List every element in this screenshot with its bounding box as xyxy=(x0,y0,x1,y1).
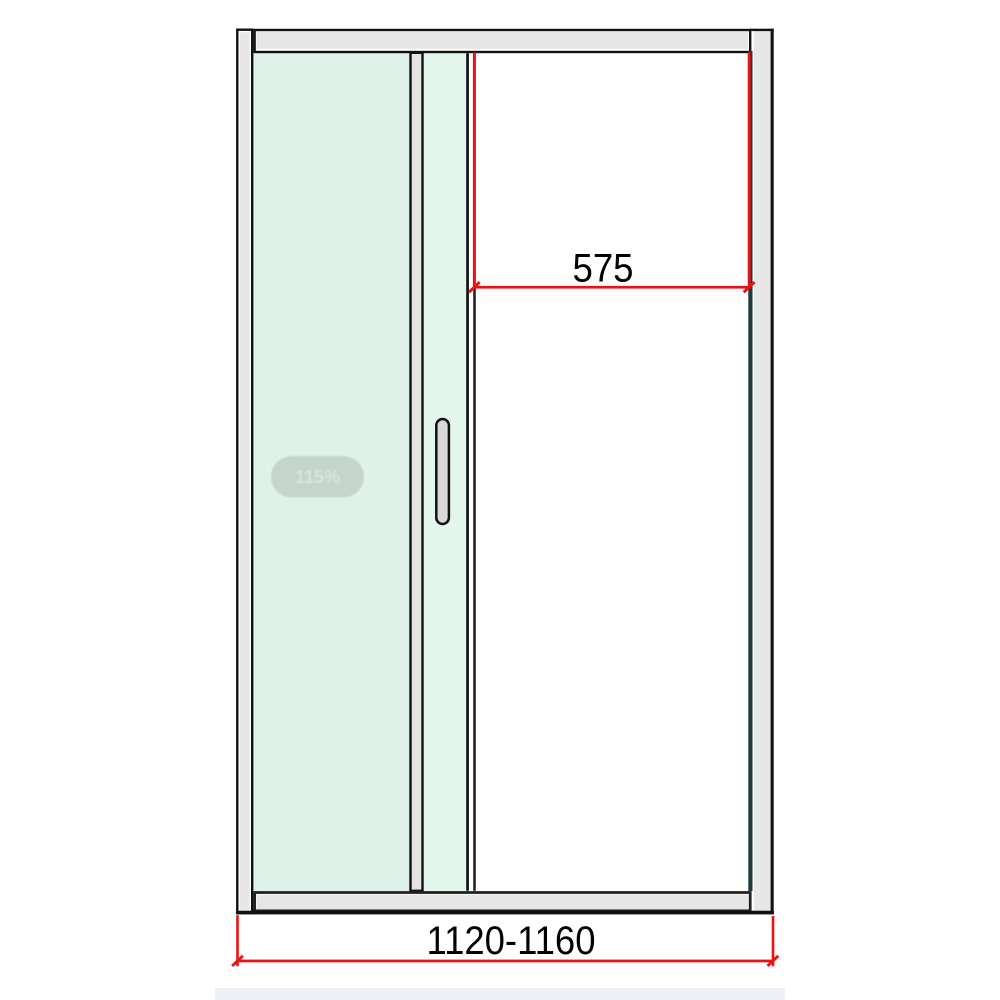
svg-text:575: 575 xyxy=(573,246,634,290)
svg-text:115%: 115% xyxy=(295,467,340,487)
svg-text:1120-1160: 1120-1160 xyxy=(427,919,596,963)
